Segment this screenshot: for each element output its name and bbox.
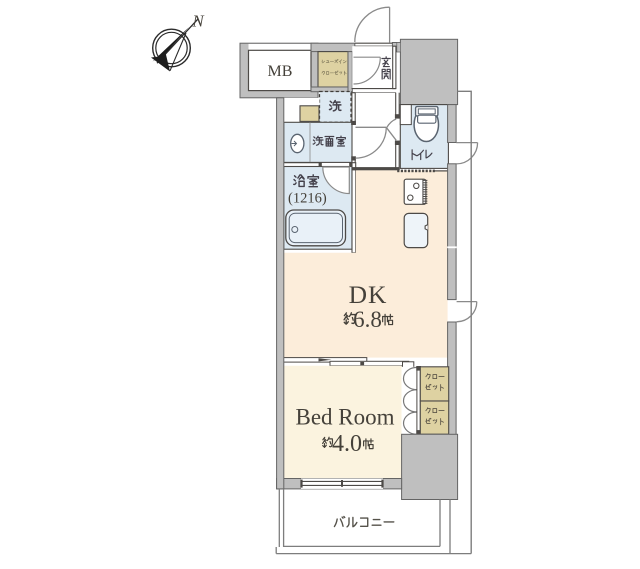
svg-text:6.8: 6.8 bbox=[353, 307, 382, 332]
svg-text:MB: MB bbox=[268, 63, 293, 80]
svg-text:Bed Room: Bed Room bbox=[295, 405, 394, 430]
svg-text:DK: DK bbox=[349, 280, 388, 309]
svg-text:N: N bbox=[191, 12, 205, 31]
svg-text:4.0: 4.0 bbox=[332, 431, 362, 457]
svg-text:(1216): (1216) bbox=[288, 191, 327, 207]
